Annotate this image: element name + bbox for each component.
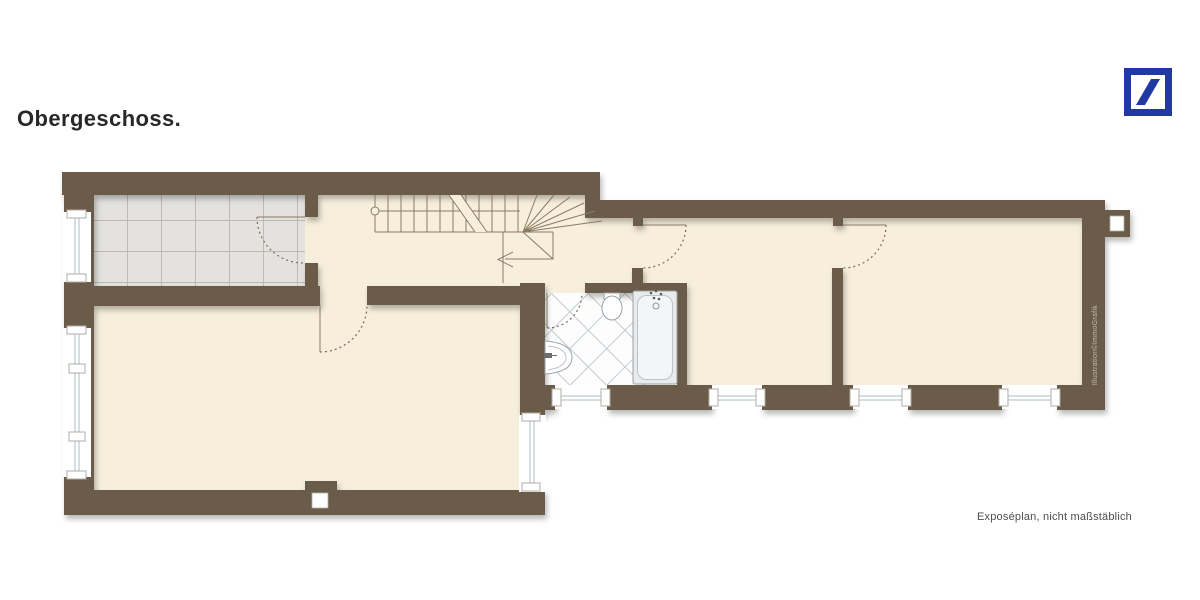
window-left-lower xyxy=(63,326,91,479)
window-room1-south xyxy=(709,386,765,409)
window-room2-south-b xyxy=(999,386,1060,409)
floor-plan: Illustration©ImmoGrafik xyxy=(0,0,1200,600)
window-room2-south-a xyxy=(850,386,911,409)
window-mid-right xyxy=(519,413,546,492)
page: Obergeschoss. xyxy=(0,0,1200,600)
window-bath-south xyxy=(552,386,610,409)
watermark: Illustration©ImmoGrafik xyxy=(1091,305,1099,385)
tiled-room-floor xyxy=(94,190,305,290)
toilet xyxy=(602,293,622,320)
scale-disclaimer: Exposéplan, nicht maßstäblich xyxy=(977,511,1132,523)
faucet-icon xyxy=(544,353,552,358)
window-left-upper xyxy=(63,210,91,282)
bathtub xyxy=(633,290,677,384)
